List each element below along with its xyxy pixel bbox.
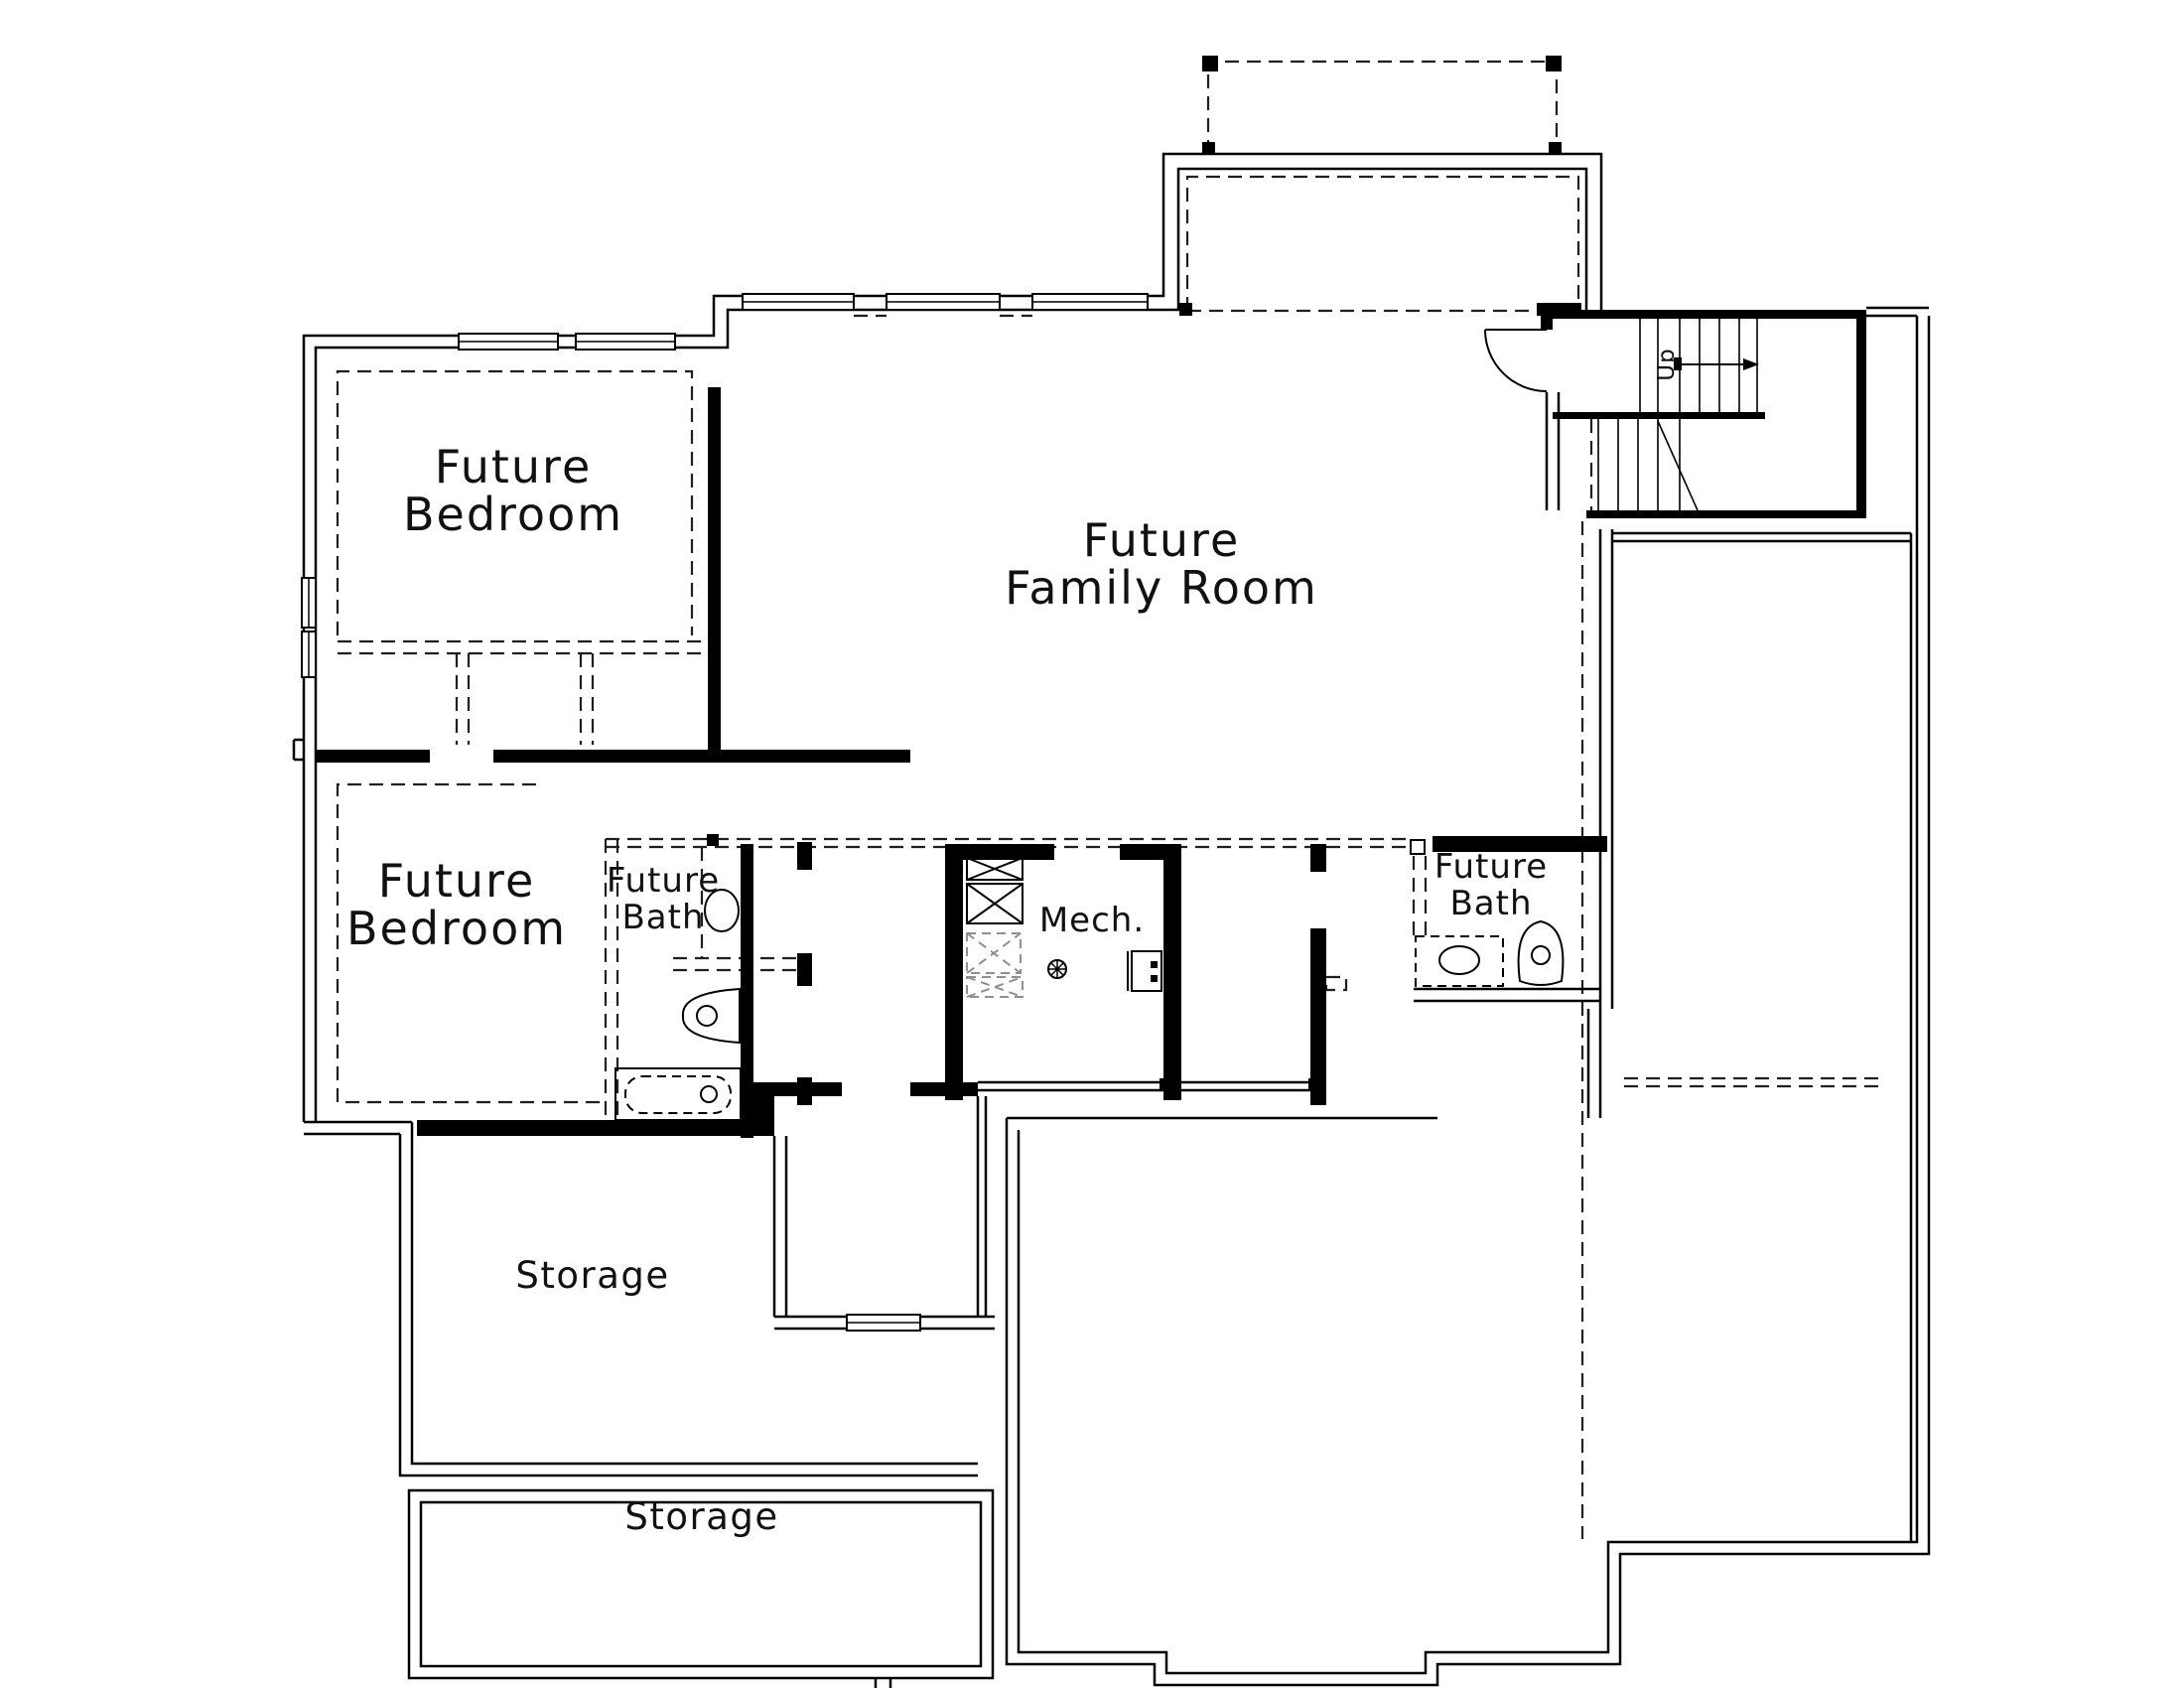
window bbox=[1032, 294, 1148, 310]
window bbox=[302, 632, 316, 677]
room-label-future-bath-2-line2: Bath bbox=[1449, 884, 1532, 923]
deck-post bbox=[1202, 56, 1218, 71]
deck-posts bbox=[1202, 56, 1562, 154]
room-label-storage-1: Storage bbox=[515, 1254, 669, 1297]
floor-plan-drawing: Up bbox=[0, 0, 2184, 1688]
stair-break-line bbox=[1658, 421, 1698, 510]
water-heater-icon bbox=[1128, 951, 1161, 991]
storage1-north-wall bbox=[417, 1120, 774, 1136]
room-label-future-bath-1-line2: Bath bbox=[621, 898, 704, 937]
bathtub-icon bbox=[615, 1068, 741, 1120]
mech-west-wall bbox=[945, 844, 963, 1100]
vanity-outline bbox=[1416, 936, 1503, 986]
window bbox=[459, 334, 558, 350]
hvac-unit bbox=[967, 858, 1023, 923]
deck-outline bbox=[1208, 62, 1557, 154]
cased-opening bbox=[847, 1315, 920, 1331]
room-label-future-bedroom-2-line2: Bedroom bbox=[346, 902, 567, 955]
room-label-future-family-room-line1: Future bbox=[1083, 513, 1241, 567]
toilet-icon bbox=[683, 989, 740, 1043]
room-label-mech: Mech. bbox=[1039, 901, 1145, 940]
room-label-storage-2: Storage bbox=[624, 1495, 778, 1538]
stair-treads bbox=[1598, 419, 1680, 510]
room-label-future-bath-1-line1: Future bbox=[607, 861, 720, 901]
window bbox=[576, 334, 675, 350]
floor-drain-icon bbox=[1048, 960, 1066, 978]
bedroom-divider-wall bbox=[316, 750, 430, 763]
floor-plan-page: Up bbox=[0, 0, 2184, 1688]
room-label-future-bath-2-line1: Future bbox=[1434, 847, 1548, 887]
future-hvac-unit bbox=[967, 933, 1023, 997]
room-label-future-family-room-line2: Family Room bbox=[1005, 561, 1318, 615]
stair-wall bbox=[1553, 310, 1866, 319]
window bbox=[743, 294, 854, 310]
deck-post bbox=[1549, 142, 1562, 154]
wall-notch bbox=[294, 740, 304, 760]
bedroom1-east-wall bbox=[708, 387, 721, 763]
room-label-future-bedroom-2-line1: Future bbox=[378, 854, 536, 908]
toilet-icon bbox=[1519, 921, 1564, 985]
foundation-stub bbox=[876, 1678, 890, 1688]
sink-icon bbox=[1439, 946, 1479, 974]
deck-post bbox=[1202, 142, 1215, 154]
windows bbox=[302, 294, 1148, 1331]
stairs-up-label: Up bbox=[1654, 348, 1680, 380]
interior-walls bbox=[316, 303, 1866, 1138]
future-wall-lines bbox=[338, 62, 1879, 1539]
bath1-east-wall bbox=[741, 844, 753, 1138]
deck-post bbox=[1546, 56, 1562, 71]
room-label-future-bedroom-1-line2: Bedroom bbox=[403, 488, 623, 541]
room-label-future-bedroom-1-line1: Future bbox=[435, 440, 593, 493]
window bbox=[887, 294, 1000, 310]
door-swing bbox=[1485, 330, 1547, 391]
mech-east-wall bbox=[1163, 844, 1181, 1100]
window bbox=[302, 578, 316, 628]
